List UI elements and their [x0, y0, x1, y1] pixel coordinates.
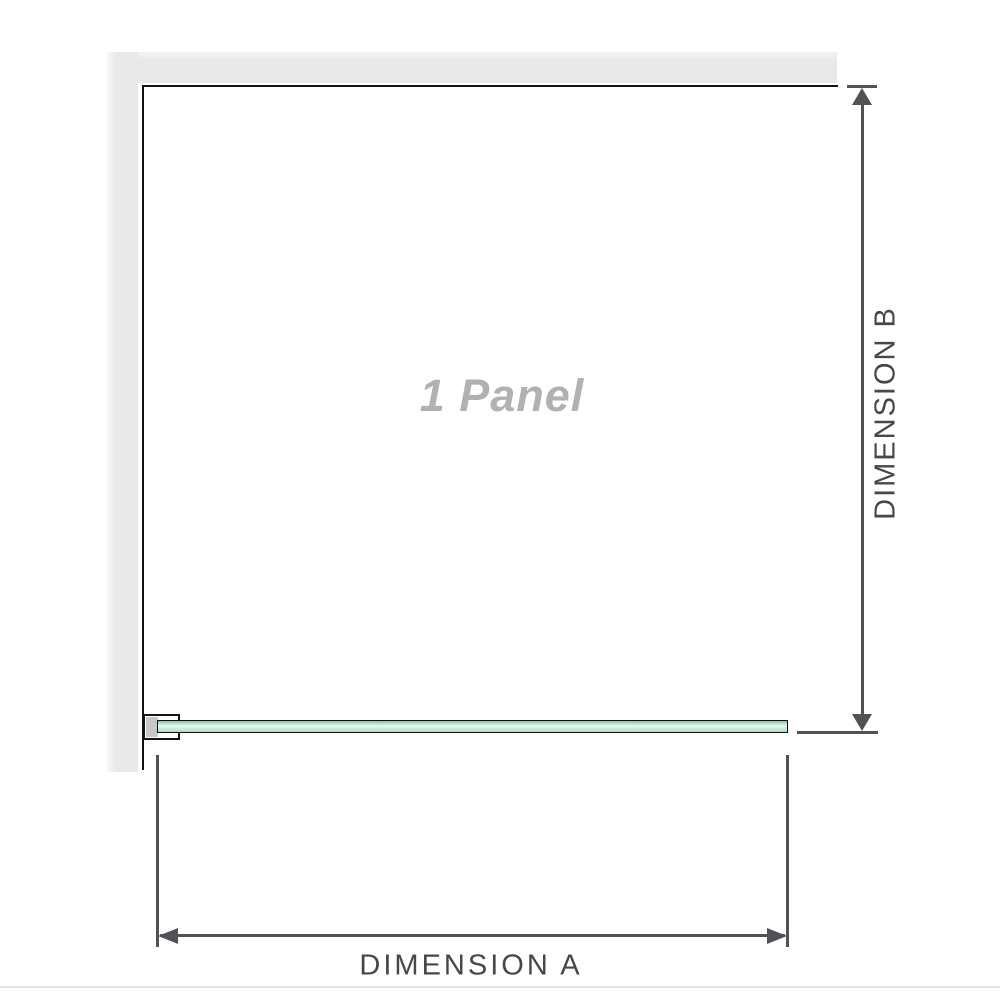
panel-dimension-diagram: 1 Panel DIMENSION B DIMENSION A	[0, 0, 1000, 1000]
glass-panel	[157, 720, 788, 733]
footer-divider-line	[0, 986, 1000, 988]
dimension-a-line	[160, 934, 785, 937]
dimension-a-label: DIMENSION A	[359, 950, 582, 983]
dimension-a-arrowhead-left	[158, 928, 178, 944]
dimension-a-right-extension-line	[786, 755, 789, 947]
panel-frame-left-edge	[142, 85, 144, 770]
dimension-a-arrowhead-right	[767, 928, 787, 944]
dimension-a-left-extension-line	[156, 755, 159, 947]
panel-frame-top-edge	[142, 85, 838, 87]
wall-top-strip	[107, 52, 837, 83]
dimension-b-bottom-tick	[797, 731, 878, 734]
dimension-b-arrowhead-down	[852, 714, 872, 731]
dimension-b-label: DIMENSION B	[870, 306, 903, 520]
panel-count-label: 1 Panel	[420, 370, 585, 422]
dimension-b-arrowhead-up	[852, 88, 872, 105]
dimension-b-line	[861, 100, 864, 716]
wall-left-strip	[107, 52, 138, 772]
